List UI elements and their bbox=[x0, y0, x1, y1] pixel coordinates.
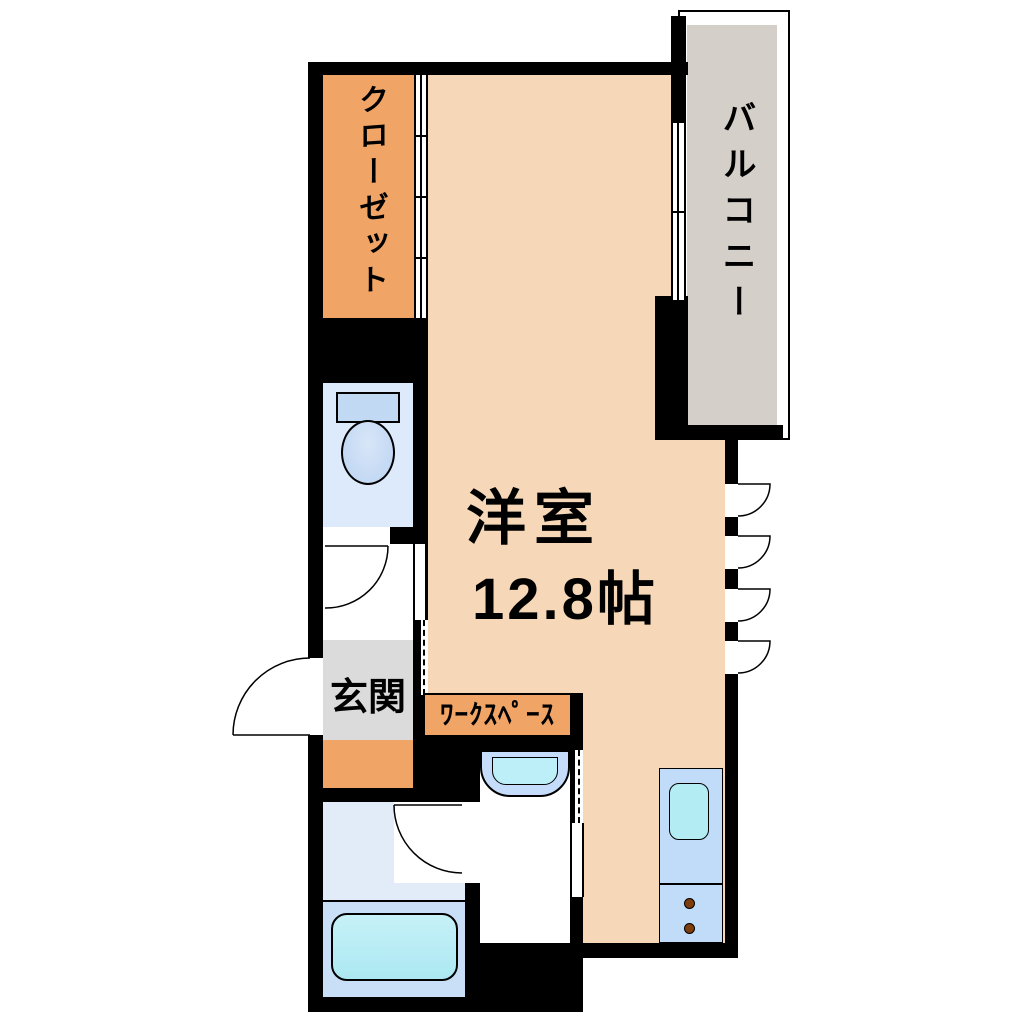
closet-label: クローゼット bbox=[348, 82, 392, 325]
hall-sliding-door-panel bbox=[413, 544, 427, 620]
hall-floor bbox=[323, 544, 413, 640]
kitchen-sink-icon bbox=[669, 783, 709, 840]
casement-window-opening bbox=[725, 483, 738, 518]
casement-window-arc bbox=[738, 589, 770, 621]
hall-sliding-door-wall bbox=[413, 620, 421, 695]
front-door-swing-arc bbox=[233, 658, 310, 735]
main-room-floor bbox=[655, 75, 671, 296]
toilet-tank bbox=[336, 392, 400, 423]
balcony-window bbox=[671, 123, 686, 300]
main-room-floor bbox=[428, 75, 655, 440]
powder-sliding-door-track bbox=[578, 750, 580, 823]
toilet-door-opening bbox=[323, 527, 390, 544]
wall-balcony-upper-left bbox=[671, 16, 686, 126]
window-sash-line bbox=[673, 211, 684, 213]
wall-east bbox=[725, 443, 738, 958]
entrance-label: 玄関 bbox=[323, 666, 413, 721]
closet-door-track bbox=[420, 75, 422, 318]
toilet-icon bbox=[341, 420, 395, 485]
casement-window-opening bbox=[725, 640, 738, 675]
wall-balcony-lower-left bbox=[655, 296, 688, 440]
washbasin-bowl bbox=[492, 757, 558, 785]
casement-window-arc bbox=[738, 536, 770, 568]
stove-burner-icon bbox=[684, 898, 695, 909]
workspace-area: ﾜｰｸｽﾍﾟｰｽ bbox=[423, 693, 572, 737]
casement-window-opening bbox=[725, 535, 738, 570]
powder-sliding-door-panel bbox=[570, 823, 584, 897]
bathroom-door-area bbox=[394, 802, 480, 883]
casement-window-opening bbox=[725, 588, 738, 623]
front-door-opening bbox=[308, 658, 323, 735]
closet-sliding-door bbox=[414, 75, 428, 318]
main-room-label: 洋室 bbox=[466, 470, 602, 557]
wall-balcony-bottom bbox=[655, 425, 783, 438]
wall-south-kitchen bbox=[583, 943, 738, 958]
bathtub-icon bbox=[331, 913, 458, 981]
floor-plan: ﾜｰｸｽﾍﾟｰｽ クローゼット バルコニー 洋室 12.8帖 玄関 bbox=[0, 0, 1020, 1020]
casement-window-arc bbox=[738, 641, 770, 673]
entrance-step-floor bbox=[323, 740, 413, 788]
workspace-label: ﾜｰｸｽﾍﾟｰｽ bbox=[425, 695, 570, 735]
wall-workspace-right bbox=[572, 693, 583, 743]
kitchen-counter-divider bbox=[659, 883, 723, 885]
stove-burner-icon bbox=[684, 923, 695, 934]
hall-sliding-door-track bbox=[423, 620, 425, 695]
main-room-size: 12.8帖 bbox=[472, 552, 658, 636]
casement-window-arc bbox=[738, 484, 770, 516]
balcony-label: バルコニー bbox=[712, 100, 761, 360]
